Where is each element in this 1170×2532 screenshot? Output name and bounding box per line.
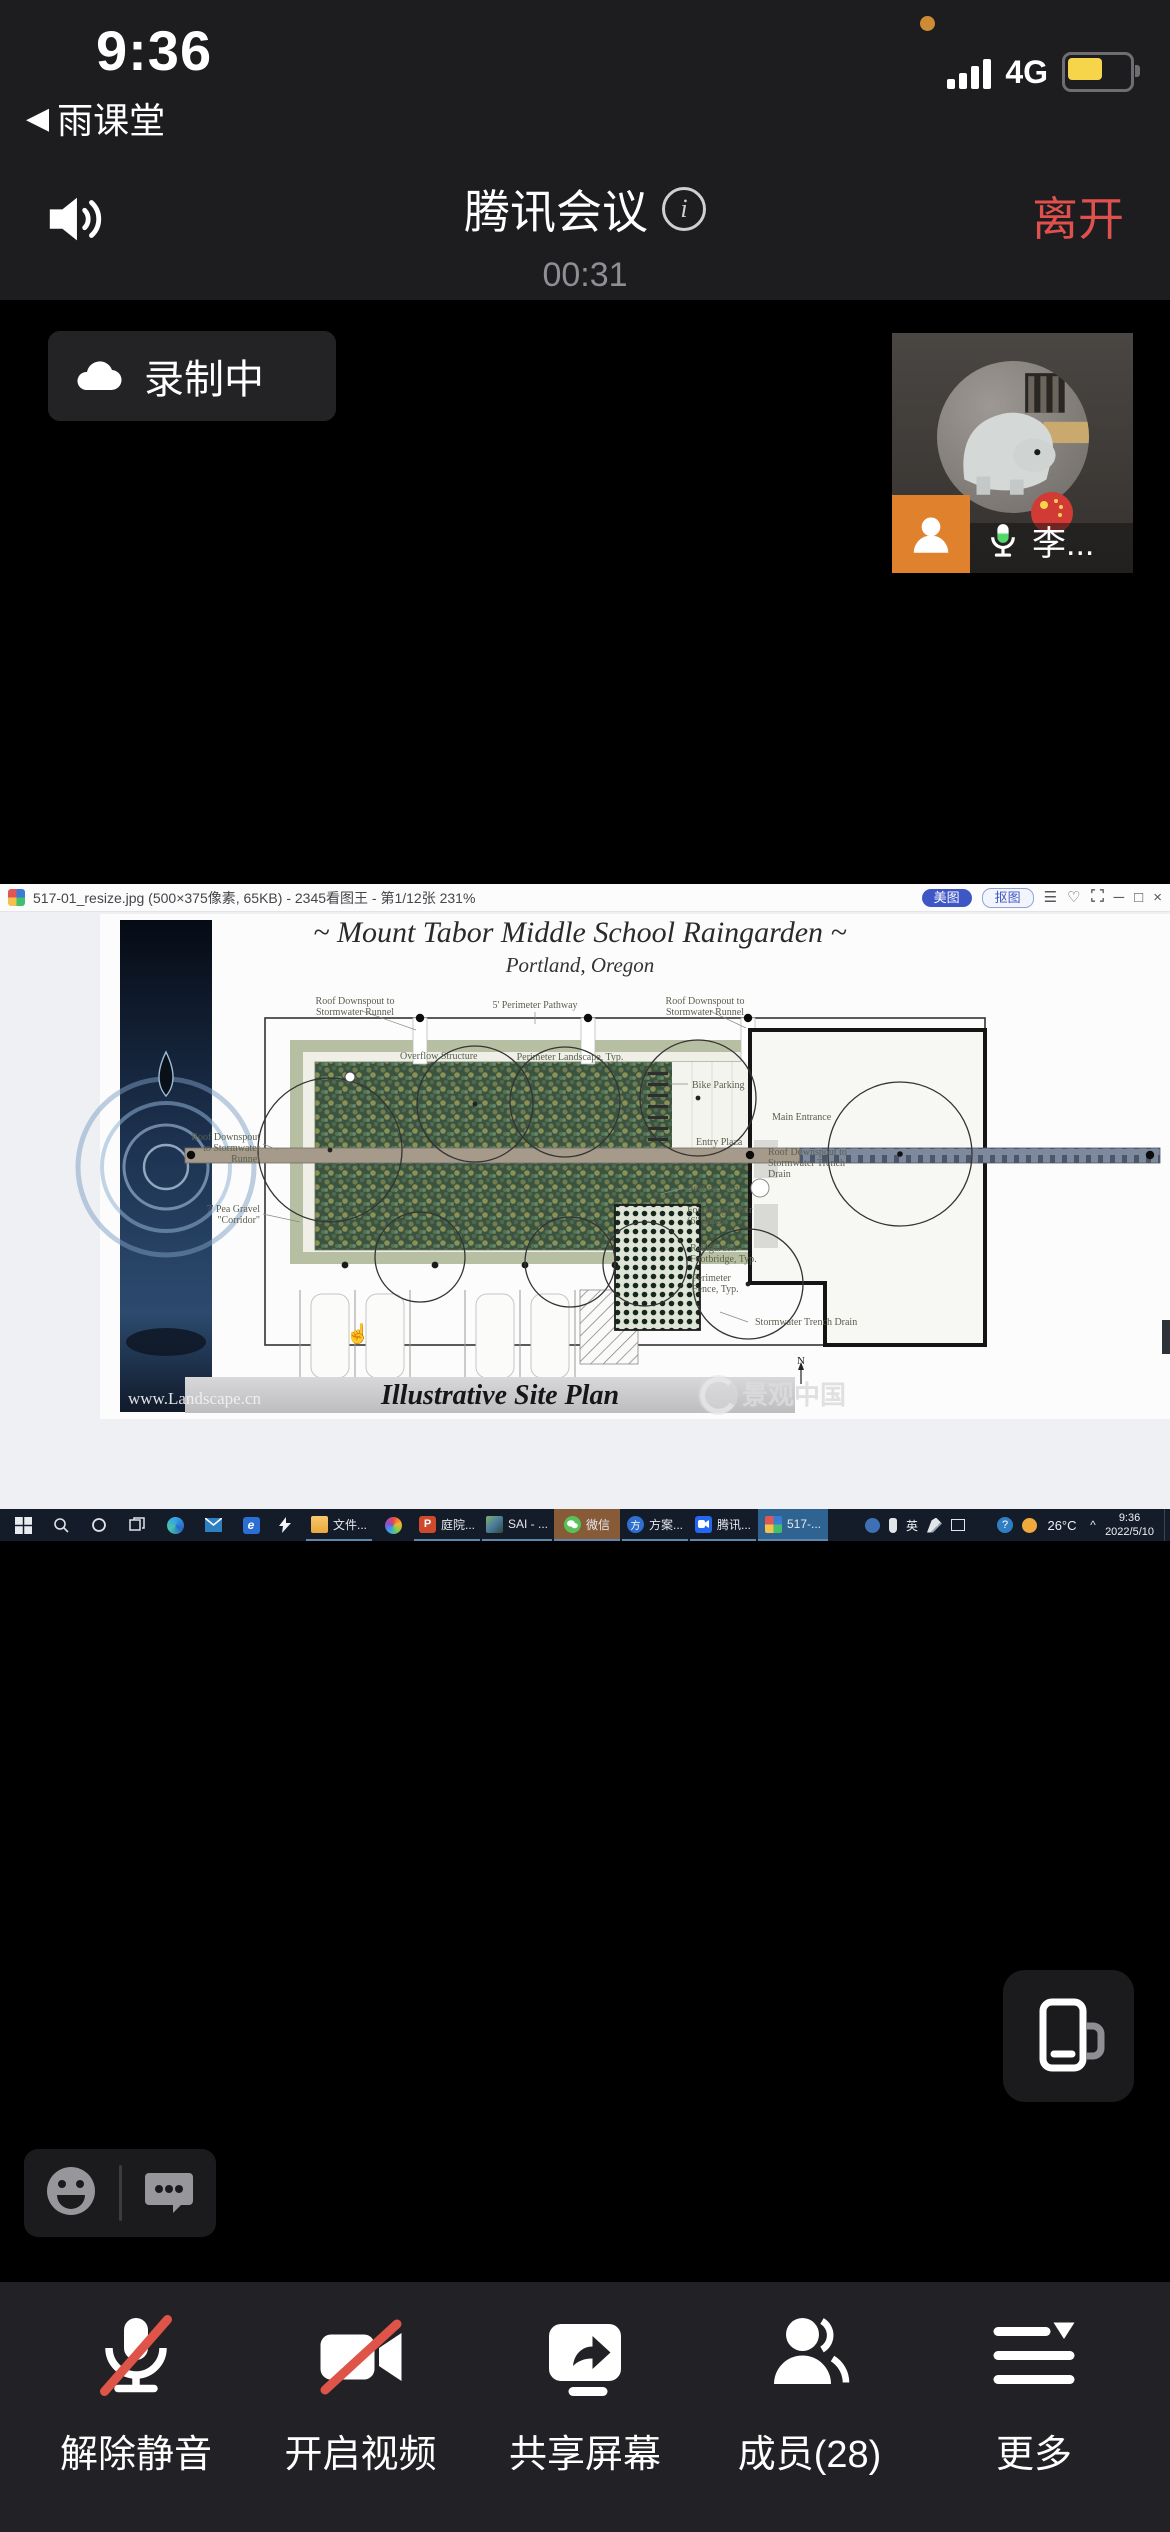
- tray-chevron: ^: [1084, 1509, 1102, 1541]
- taskbar-app-powerpoint: P 庭院...: [414, 1509, 480, 1541]
- rotate-screen-button[interactable]: [1003, 1970, 1134, 2102]
- color-wheel-app-icon: [374, 1509, 412, 1541]
- svg-text:Stormwater Trench: Stormwater Trench: [768, 1158, 845, 1169]
- svg-text:Raingarden: Raingarden: [690, 1243, 736, 1254]
- battery-icon: [1062, 52, 1134, 92]
- person-icon: [908, 511, 954, 557]
- tray-weather-icon: [1018, 1509, 1040, 1541]
- plan-title: ~ Mount Tabor Middle School Raingarden ~: [313, 916, 847, 949]
- more-button[interactable]: 更多: [934, 2308, 1134, 2532]
- svg-text:"Corridor": "Corridor": [217, 1215, 260, 1226]
- windows-start-icon: [6, 1509, 40, 1541]
- bar-divider: [119, 2165, 122, 2221]
- svg-text:5' Perimeter Pathway: 5' Perimeter Pathway: [492, 1000, 577, 1011]
- svg-text:Perimeter Landscape, Typ.: Perimeter Landscape, Typ.: [517, 1052, 624, 1063]
- recording-badge[interactable]: 录制中: [48, 331, 336, 421]
- svg-text:Perimeter: Perimeter: [692, 1273, 732, 1284]
- like-icon: ♡: [1067, 889, 1080, 907]
- folder-icon: [311, 1516, 328, 1533]
- viewer-title-text: 517-01_resize.jpg (500×375像素, 65KB) - 23…: [33, 888, 475, 908]
- show-desktop-strip: [1164, 1509, 1170, 1541]
- tray-temperature: 26°C: [1040, 1509, 1084, 1541]
- mail-icon: [196, 1509, 230, 1541]
- participant-name: 李...: [1032, 516, 1094, 565]
- tray-help-icon: ?: [992, 1509, 1018, 1541]
- info-icon[interactable]: i: [662, 187, 706, 231]
- tray-mic-icon: [889, 1518, 897, 1533]
- camera-muted-icon: [313, 2309, 409, 2405]
- scrollbar-tab: [1162, 1320, 1170, 1354]
- back-triangle-icon: ◀: [26, 101, 49, 136]
- rotate-phone-icon: [1023, 1990, 1115, 2082]
- svg-text:Roof Downspout: Roof Downspout: [191, 1132, 260, 1143]
- svg-text:(6" depth): (6" depth): [687, 1216, 727, 1227]
- fullscreen-icon: [1091, 889, 1104, 907]
- signal-bars-icon: [947, 55, 991, 89]
- fangan-icon: 方: [627, 1516, 644, 1533]
- members-icon: [762, 2309, 858, 2405]
- svg-text:Entry Plaza: Entry Plaza: [696, 1137, 743, 1148]
- recording-label: 录制中: [144, 347, 264, 405]
- more-icon: [986, 2309, 1082, 2405]
- tray-ime-icon: 英: [906, 1517, 918, 1534]
- koutu-button: 抠图: [982, 888, 1034, 908]
- participant-role-badge: [892, 495, 970, 573]
- unmute-button[interactable]: 解除静音: [36, 2308, 236, 2532]
- maximize-icon: □: [1134, 889, 1143, 907]
- taskbar-clock: 9:36 2022/5/10: [1105, 1511, 1154, 1539]
- emoji-reaction-button[interactable]: [45, 2165, 97, 2222]
- bolt-icon: [270, 1509, 300, 1541]
- taskbar-search-icon: [44, 1509, 78, 1541]
- meeting-title: 腾讯会议: [464, 176, 648, 242]
- share-screen-icon: [537, 2309, 633, 2405]
- reaction-chat-bar: [24, 2149, 216, 2237]
- chat-button[interactable]: [143, 2165, 195, 2222]
- site-watermark: www.Landscape.cn: [128, 1389, 261, 1408]
- mic-in-use-dot: [920, 16, 935, 31]
- members-button[interactable]: 成员(28): [710, 2308, 910, 2532]
- svg-text:7' Pea Gravel: 7' Pea Gravel: [207, 1204, 261, 1215]
- cortana-icon: [82, 1509, 116, 1541]
- windows-taskbar: e 文件... P 庭院... SAI - ... 微信 方 方案...: [0, 1509, 1170, 1541]
- edge-icon: [158, 1509, 192, 1541]
- network-type: 4G: [1005, 54, 1048, 91]
- menu-icon: ☰: [1044, 889, 1057, 907]
- status-right-cluster: 4G: [947, 52, 1134, 92]
- mic-muted-icon: [88, 2309, 184, 2405]
- minimize-icon: ─: [1114, 889, 1125, 907]
- viewer-canvas: ~ Mount Tabor Middle School Raingarden ~…: [0, 912, 1170, 1509]
- shared-screen-stream[interactable]: 517-01_resize.jpg (500×375像素, 65KB) - 23…: [0, 884, 1170, 1541]
- hand-cursor: ☝: [346, 1322, 370, 1345]
- sai-icon: [486, 1516, 503, 1533]
- svg-text:Drain: Drain: [768, 1169, 791, 1180]
- taskbar-time: 9:36: [1105, 1511, 1154, 1525]
- back-to-app-link[interactable]: ◀ 雨课堂: [26, 92, 165, 144]
- task-view-icon: [120, 1509, 154, 1541]
- phone-screen: { "status_bar": { "time": "9:36", "back_…: [0, 0, 1170, 2532]
- meeting-timer: 00:31: [0, 256, 1170, 295]
- svg-text:Overflow Structure: Overflow Structure: [400, 1051, 478, 1062]
- wechat-icon: [564, 1516, 581, 1533]
- svg-text:Seating, Typ.: Seating, Typ.: [688, 1183, 741, 1194]
- viewer-app-icon: [8, 889, 25, 906]
- svg-text:Roof Downspout to: Roof Downspout to: [666, 996, 745, 1007]
- status-and-header-band: 9:36 4G ◀ 雨课堂 腾讯会议 i 00:31 离开: [0, 0, 1170, 300]
- svg-text:Bike Parking: Bike Parking: [692, 1080, 745, 1091]
- svg-text:Footbridge Weir: Footbridge Weir: [687, 1205, 753, 1216]
- start-video-button[interactable]: 开启视频: [261, 2308, 461, 2532]
- plan-subtitle: Portland, Oregon: [505, 953, 655, 977]
- tencent-meeting-icon: [695, 1516, 712, 1533]
- svg-text:Footbridge, Typ.: Footbridge, Typ.: [690, 1254, 757, 1265]
- meeting-toolbar: 解除静音 开启视频 共享屏幕 成员(28): [0, 2282, 1170, 2532]
- cloud-icon: [76, 359, 122, 393]
- svg-text:Roof Downspout to: Roof Downspout to: [316, 996, 395, 1007]
- svg-text:Roof Downspout to: Roof Downspout to: [768, 1147, 847, 1158]
- close-icon: ×: [1153, 889, 1162, 907]
- image-viewer-titlebar: 517-01_resize.jpg (500×375像素, 65KB) - 23…: [0, 884, 1170, 912]
- svg-text:Stormwater Runnel: Stormwater Runnel: [316, 1007, 394, 1018]
- svg-text:Stormwater Trench Drain: Stormwater Trench Drain: [755, 1317, 857, 1328]
- svg-text:景观中国: 景观中国: [742, 1381, 846, 1410]
- taskbar-app-image-viewer: 517-...: [758, 1509, 828, 1541]
- svg-text:Fence, Typ.: Fence, Typ.: [692, 1284, 739, 1295]
- mic-active-icon: [988, 522, 1018, 565]
- meitu-button: 美图: [922, 889, 972, 907]
- svg-text:Runnel: Runnel: [231, 1154, 260, 1165]
- svg-text:Main Entrance: Main Entrance: [772, 1112, 832, 1123]
- brand-watermark: 景观中国: [698, 1375, 846, 1415]
- participant-video-thumbnail[interactable]: 李...: [892, 333, 1133, 573]
- taskbar-app-files: 文件...: [306, 1509, 372, 1541]
- taskbar-app-fangan: 方 方案...: [622, 1509, 688, 1541]
- back-app-label: 雨课堂: [57, 92, 165, 144]
- svg-text:to Stormwater: to Stormwater: [203, 1143, 261, 1154]
- tray-icons-left: 英: [840, 1509, 990, 1541]
- plan-footer-title: Illustrative Site Plan: [380, 1380, 619, 1411]
- tray-pen-icon: [927, 1518, 942, 1533]
- taskbar-app-sai: SAI - ...: [482, 1509, 552, 1541]
- viewer-window-controls: 美图 抠图 ☰ ♡ ─ □ ×: [922, 888, 1162, 908]
- tray-screenshot-icon: [951, 1519, 965, 1531]
- site-plan-image: ~ Mount Tabor Middle School Raingarden ~…: [0, 912, 1170, 1509]
- e-app-icon: e: [234, 1509, 268, 1541]
- share-screen-button[interactable]: 共享屏幕: [485, 2308, 685, 2532]
- svg-text:Stormwater Runnel: Stormwater Runnel: [666, 1007, 744, 1018]
- image-viewer-icon: [765, 1516, 782, 1533]
- meeting-header: 腾讯会议 i 00:31 离开: [0, 170, 1170, 290]
- leave-meeting-button[interactable]: 离开: [1026, 182, 1130, 250]
- taskbar-date: 2022/5/10: [1105, 1525, 1154, 1539]
- taskbar-app-tencent-meeting: 腾讯...: [690, 1509, 756, 1541]
- powerpoint-icon: P: [419, 1516, 436, 1533]
- taskbar-app-wechat: 微信: [554, 1509, 620, 1541]
- tray-app-icon: [865, 1518, 880, 1533]
- status-time: 9:36: [96, 18, 212, 83]
